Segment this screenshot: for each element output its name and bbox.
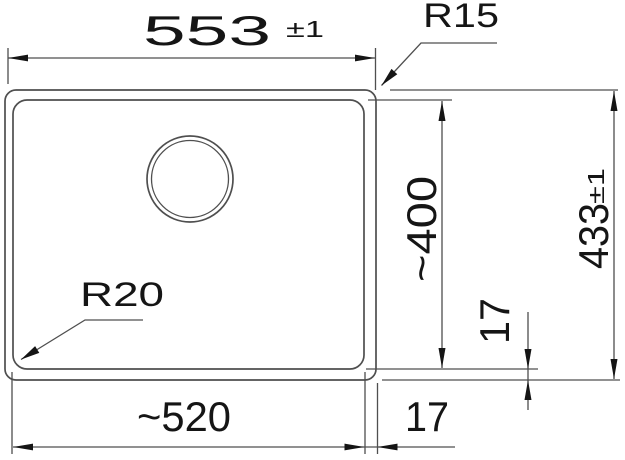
r20-label: R20 (80, 276, 164, 314)
r15-label: R15 (423, 0, 499, 35)
dim-400-arrow-bottom (439, 348, 446, 368)
dim-553-tolerance: ±1 (286, 16, 324, 42)
r15-leader-line (382, 43, 498, 86)
r20-leader-arrow (21, 346, 39, 359)
dim-433-arrow-top (611, 91, 618, 111)
dim-553-label: 553 (143, 7, 271, 54)
dim-553-arrow-right (355, 55, 375, 62)
dim-17-right-arrow-top (525, 349, 532, 369)
dim-17-bottom-arrow (378, 444, 398, 451)
drawing-canvas: 553 ±1 R15 433 ±1 ~400 17 R20 (0, 0, 625, 460)
dim-520-arrow-left (13, 444, 33, 451)
dim-17-right-arrow-bottom (525, 380, 532, 400)
dim-400-label: ~400 (398, 176, 445, 282)
dim-433-label: 433 (570, 203, 617, 269)
sink-outer-rim (5, 90, 376, 380)
dim-553-arrow-left (8, 55, 28, 62)
drain-hole-inner-circle (152, 141, 229, 218)
dim-17-right-label: 17 (471, 298, 518, 344)
r20-leader-line (21, 320, 143, 360)
dim-17-bottom-label: 17 (405, 393, 449, 440)
dim-433-arrow-bottom (611, 359, 618, 379)
drain-hole-outer-circle (147, 136, 233, 222)
dim-520-arrow-right (345, 444, 365, 451)
sink-dimension-drawing: 553 ±1 R15 433 ±1 ~400 17 R20 (0, 0, 625, 460)
dim-400-arrow-top (439, 101, 446, 121)
dim-520-label: ~520 (137, 393, 231, 440)
dim-433-tolerance: ±1 (583, 168, 609, 204)
